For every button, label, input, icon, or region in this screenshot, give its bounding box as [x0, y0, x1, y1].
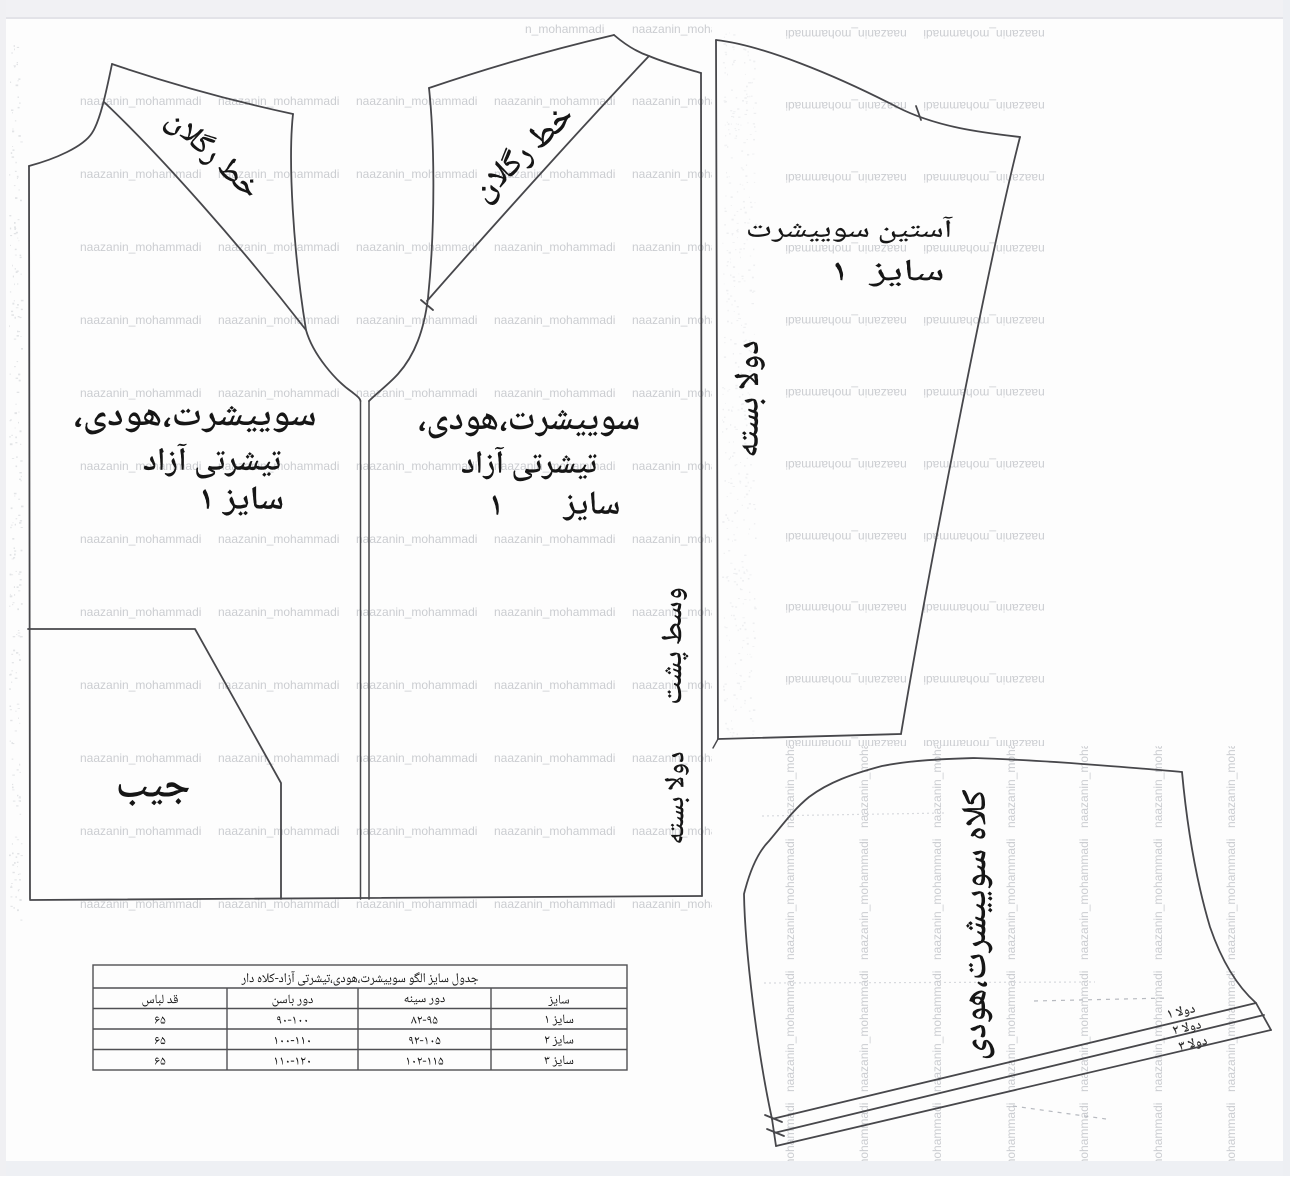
- svg-text:naazanin_mohammadi: naazanin_mohammadi: [494, 386, 615, 400]
- svg-text:naazanin_mohammadi: naazanin_mohammadi: [356, 459, 477, 473]
- svg-text:naazanin_mohammadi: naazanin_mohammadi: [80, 240, 201, 254]
- svg-text:naazanin_mohammadi: naazanin_mohammadi: [80, 94, 201, 108]
- svg-text:naazanin_mohammadi: naazanin_mohammadi: [785, 27, 906, 41]
- svg-text:naazanin_mohammadi: naazanin_mohammadi: [356, 824, 477, 838]
- svg-text:naazanin_mohammadi: naazanin_mohammadi: [80, 313, 201, 327]
- svg-text:naazanin_mohammadi: naazanin_mohammadi: [785, 601, 906, 615]
- svg-text:naazanin_mohammadi: naazanin_mohammadi: [80, 605, 201, 619]
- svg-text:naazanin_mohammadi: naazanin_mohammadi: [494, 751, 615, 765]
- svg-text:naazanin_mohammadi: naazanin_mohammadi: [923, 386, 1044, 400]
- svg-text:naazanin_mohammadi: naazanin_mohammadi: [356, 240, 477, 254]
- svg-text:naazanin_mohammadi: naazanin_mohammadi: [80, 386, 201, 400]
- svg-text:naazanin_mohammadi: naazanin_mohammadi: [356, 605, 477, 619]
- svg-text:naazanin_mohammadi: naazanin_mohammadi: [923, 171, 1044, 185]
- svg-text:naazanin_mohammadi: naazanin_mohammadi: [494, 240, 615, 254]
- svg-text:naazanin_mohammadi: naazanin_mohammadi: [356, 751, 477, 765]
- svg-text:naazanin_mohammadi: naazanin_mohammadi: [923, 601, 1044, 615]
- svg-text:naazanin_mohammadi: naazanin_mohammadi: [785, 458, 906, 472]
- svg-text:naazanin_mohammadi: naazanin_mohammadi: [930, 971, 944, 1092]
- svg-text:naazanin_mohammadi: naazanin_mohammadi: [923, 242, 1044, 256]
- svg-text:naazanin_mohammadi: naazanin_mohammadi: [923, 314, 1044, 328]
- svg-text:naazanin_mohammadi: naazanin_mohammadi: [930, 839, 944, 960]
- svg-text:naazanin_mohammadi: naazanin_mohammadi: [494, 313, 615, 327]
- svg-text:naazanin_mohammadi: naazanin_mohammadi: [494, 532, 615, 546]
- svg-text:naazanin_mohammadi: naazanin_mohammadi: [218, 605, 339, 619]
- svg-text:naazanin_mohammadi: naazanin_mohammadi: [494, 897, 615, 911]
- svg-text:naazanin_mohammadi: naazanin_mohammadi: [356, 678, 477, 692]
- svg-text:naazanin_mohammadi: naazanin_mohammadi: [356, 167, 477, 181]
- svg-text:naazanin_mohammadi: naazanin_mohammadi: [785, 171, 906, 185]
- svg-text:naazanin_mohammadi: naazanin_mohammadi: [857, 839, 871, 960]
- svg-text:naazanin_mohammadi: naazanin_mohammadi: [1224, 839, 1238, 960]
- svg-text:naazanin_mohammadi: naazanin_mohammadi: [923, 458, 1044, 472]
- svg-text:naazanin_mohammadi: naazanin_mohammadi: [356, 386, 477, 400]
- svg-text:naazanin_mohammadi: naazanin_mohammadi: [218, 240, 339, 254]
- svg-text:naazanin_mohammadi: naazanin_mohammadi: [80, 751, 201, 765]
- svg-text:naazanin_mohammadi: naazanin_mohammadi: [923, 673, 1044, 687]
- svg-text:naazanin_mohammadi: naazanin_mohammadi: [80, 532, 201, 546]
- svg-text:naazanin_mohammadi: naazanin_mohammadi: [356, 532, 477, 546]
- svg-text:naazanin_mohammadi: naazanin_mohammadi: [494, 94, 615, 108]
- svg-text:naazanin_mohammadi: naazanin_mohammadi: [923, 99, 1044, 113]
- svg-text:naazanin_mohammadi: naazanin_mohammadi: [783, 839, 797, 960]
- svg-text:naazanin_mohammadi: naazanin_mohammadi: [1077, 839, 1091, 960]
- svg-text:naazanin_mohammadi: naazanin_mohammadi: [494, 605, 615, 619]
- svg-text:naazanin_mohammadi: naazanin_mohammadi: [1151, 971, 1165, 1092]
- svg-text:naazanin_mohammadi: naazanin_mohammadi: [218, 824, 339, 838]
- svg-text:naazanin_mohammadi: naazanin_mohammadi: [785, 99, 906, 113]
- svg-text:naazanin_mohammadi: naazanin_mohammadi: [494, 678, 615, 692]
- svg-text:naazanin_mohammadi: naazanin_mohammadi: [494, 824, 615, 838]
- svg-text:naazanin_mohammadi: naazanin_mohammadi: [785, 314, 906, 328]
- svg-text:naazanin_mohammadi: naazanin_mohammadi: [356, 313, 477, 327]
- svg-text:naazanin_mohammadi: naazanin_mohammadi: [785, 673, 906, 687]
- svg-text:naazanin_mohammadi: naazanin_mohammadi: [1224, 971, 1238, 1092]
- svg-text:naazanin_mohammadi: naazanin_mohammadi: [1004, 971, 1018, 1092]
- svg-text:naazanin_mohammadi: naazanin_mohammadi: [218, 313, 339, 327]
- svg-text:naazanin_mohammadi: naazanin_mohammadi: [785, 530, 906, 544]
- svg-text:naazanin_mohammadi: naazanin_mohammadi: [218, 386, 339, 400]
- svg-text:naazanin_mohammadi: naazanin_mohammadi: [1151, 839, 1165, 960]
- svg-text:naazanin_mohammadi: naazanin_mohammadi: [80, 167, 201, 181]
- svg-text:naazanin_mohammadi: naazanin_mohammadi: [80, 824, 201, 838]
- svg-text:naazanin_mohammadi: naazanin_mohammadi: [80, 678, 201, 692]
- svg-text:naazanin_mohammadi: naazanin_mohammadi: [218, 532, 339, 546]
- svg-text:naazanin_mohammadi: naazanin_mohammadi: [218, 751, 339, 765]
- svg-text:naazanin_mohammadi: naazanin_mohammadi: [923, 530, 1044, 544]
- svg-text:naazanin_mohammadi: naazanin_mohammadi: [785, 386, 906, 400]
- svg-text:naazanin_mohammadi: naazanin_mohammadi: [785, 242, 906, 256]
- svg-text:naazanin_mohammadi: naazanin_mohammadi: [356, 897, 477, 911]
- svg-text:naazanin_mohammadi: naazanin_mohammadi: [218, 678, 339, 692]
- svg-text:naazanin_mohammadi: naazanin_mohammadi: [857, 971, 871, 1092]
- svg-text:naazanin_mohammadi: naazanin_mohammadi: [923, 27, 1044, 41]
- svg-text:naazanin_mohammadi: naazanin_mohammadi: [356, 94, 477, 108]
- svg-text:n_mohammadi: n_mohammadi: [525, 22, 604, 36]
- svg-text:naazanin_mohammadi: naazanin_mohammadi: [783, 971, 797, 1092]
- svg-text:naazanin_mohammadi: naazanin_mohammadi: [1004, 839, 1018, 960]
